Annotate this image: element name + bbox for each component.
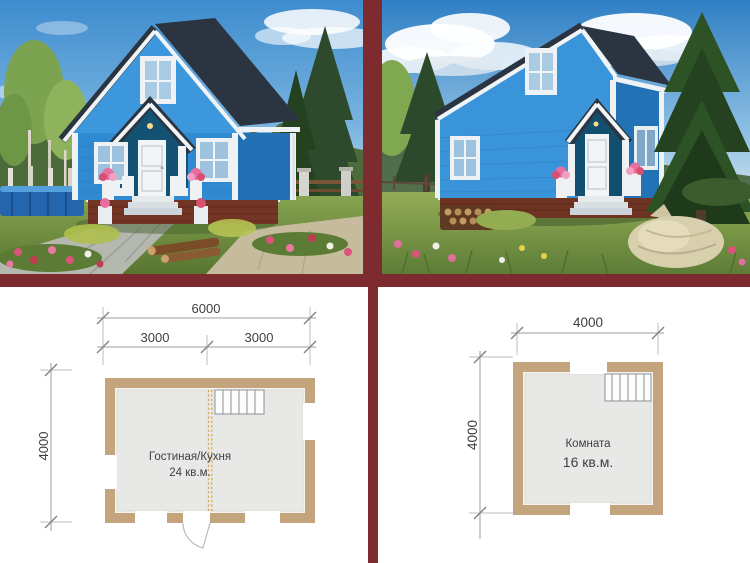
- window-left-wall: [105, 455, 117, 489]
- dim-width-halves: 3000 3000: [97, 330, 316, 365]
- front-door: [585, 134, 609, 196]
- dim-depth: 4000: [36, 363, 72, 531]
- porch-lantern: [594, 122, 599, 127]
- window-bottom-left: [135, 511, 167, 523]
- room-label: Гостиная/Кухня: [149, 451, 231, 463]
- dim-3000-left: 3000: [141, 330, 170, 345]
- stairs: [605, 374, 651, 401]
- brick-foundation: [88, 200, 278, 224]
- dim-4000-top: 4000: [573, 315, 603, 330]
- floor-plan-first-drawing: Гостиная/Кухня 24 кв.м. 6000 3000 3000: [0, 287, 368, 563]
- photo-house-front-view: [0, 0, 363, 274]
- floor-plan-second-drawing: Комната 16 кв.м. 4000 4000: [378, 287, 750, 563]
- frame-band-horizontal: [0, 274, 750, 287]
- floor-plan-first: Гостиная/Кухня 24 кв.м. 6000 3000 3000: [0, 287, 368, 563]
- floor-plan-second: Комната 16 кв.м. 4000 4000: [378, 287, 750, 563]
- window-right-wall: [303, 403, 315, 440]
- corner-trim-left: [72, 133, 78, 200]
- dim-4000-left-plan: 4000: [36, 432, 51, 461]
- attic-window: [525, 48, 557, 95]
- door-opening: [183, 511, 210, 523]
- front-door: [138, 140, 166, 196]
- photo-house-angle-view: [382, 0, 750, 274]
- corner-trim-mid: [232, 133, 238, 200]
- room-label: Комната: [565, 438, 611, 450]
- photo-front-scene: [0, 0, 363, 274]
- eave-trim: [236, 127, 300, 132]
- window-bottom-right: [245, 511, 280, 523]
- stairs: [215, 390, 264, 414]
- attic-window: [140, 56, 176, 104]
- dim-width: 4000: [511, 315, 664, 355]
- porch-lantern: [147, 123, 153, 129]
- side-wall: [238, 133, 296, 200]
- dim-4000-side: 4000: [465, 420, 480, 450]
- dim-6000: 6000: [192, 301, 221, 316]
- dim-3000-right: 3000: [245, 330, 274, 345]
- room-area: 16 кв.м.: [563, 454, 613, 470]
- downpipe: [292, 133, 295, 199]
- house-project-composite: Гостиная/Кухня 24 кв.м. 6000 3000 3000: [0, 0, 750, 563]
- dim-depth: 4000: [465, 351, 513, 539]
- room-area: 24 кв.м.: [169, 467, 210, 479]
- corner-trim-left: [435, 120, 440, 198]
- window-facade: [450, 136, 480, 180]
- frame-divider-bottom: [368, 287, 378, 563]
- photo-angle-scene: [382, 0, 750, 274]
- window-bottom-wall: [570, 503, 610, 515]
- frame-divider-top: [363, 0, 382, 287]
- door-swing: [183, 523, 210, 548]
- window-top-wall: [570, 362, 607, 374]
